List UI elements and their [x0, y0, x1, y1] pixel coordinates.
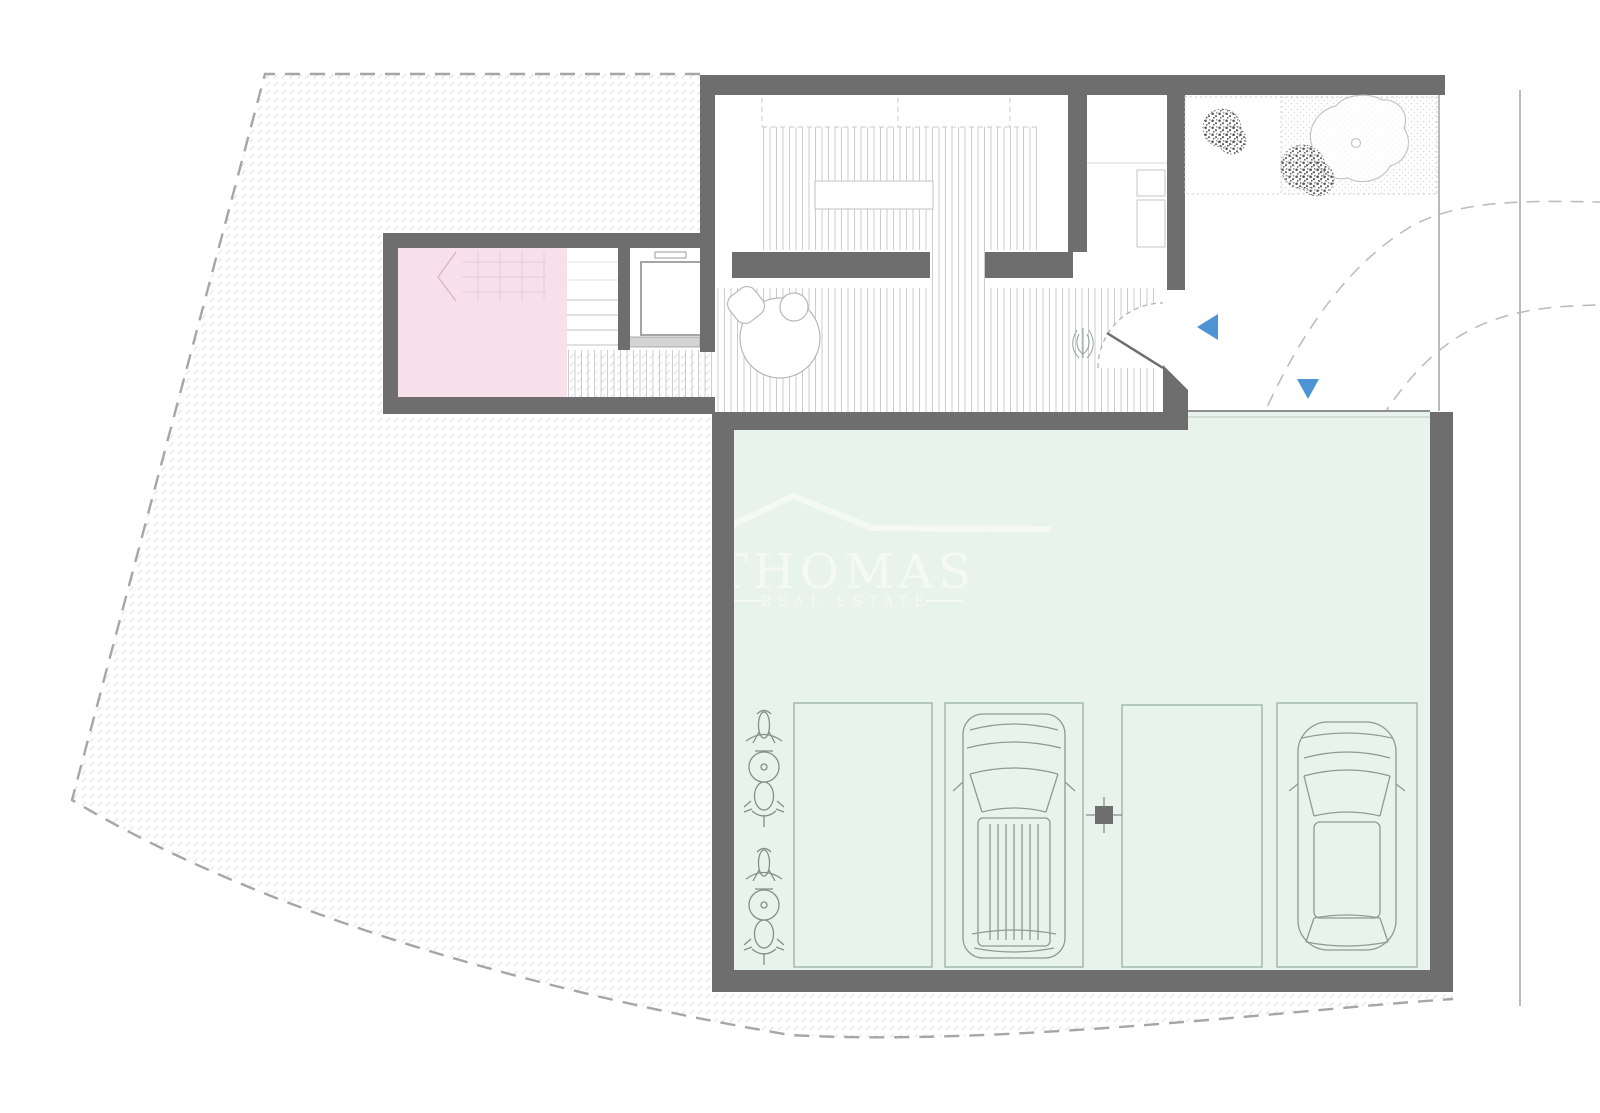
- wall-garage-right: [1430, 412, 1453, 992]
- fixture: [1137, 200, 1165, 247]
- storage-room-pink: [398, 248, 567, 397]
- wall-annex-bottom: [383, 397, 715, 414]
- wall-terrace-divider: [1068, 95, 1087, 252]
- wall-stub-a: [732, 252, 930, 278]
- watermark-brand: THOMAS: [716, 544, 976, 600]
- wall-wing-right-upper: [1167, 95, 1185, 290]
- deck-passage: [930, 250, 985, 290]
- fixture: [1137, 170, 1165, 196]
- elevator-vent: [655, 252, 686, 258]
- wall-garage-bottom: [712, 970, 1453, 992]
- annex-corridor-deck: [567, 350, 712, 397]
- wall-wing-bottom: [712, 412, 1188, 430]
- elevator-sill: [622, 337, 700, 347]
- elevator-cab: [641, 262, 707, 335]
- wall-annex-left: [383, 233, 398, 414]
- wall-wing-left: [700, 95, 715, 352]
- wall-annex-top: [383, 233, 715, 248]
- chair: [780, 293, 808, 321]
- terrace-planter: [815, 181, 933, 209]
- stairwell: [567, 248, 618, 350]
- wall-stub-b: [985, 252, 1073, 278]
- watermark-tagline: REAL ESTATE: [761, 594, 931, 610]
- wall-stair-elevator: [618, 248, 630, 350]
- floor-plan-canvas: THOMAS REAL ESTATE: [0, 0, 1600, 1113]
- wall-top: [700, 75, 1445, 95]
- wall-garage-left: [712, 430, 734, 992]
